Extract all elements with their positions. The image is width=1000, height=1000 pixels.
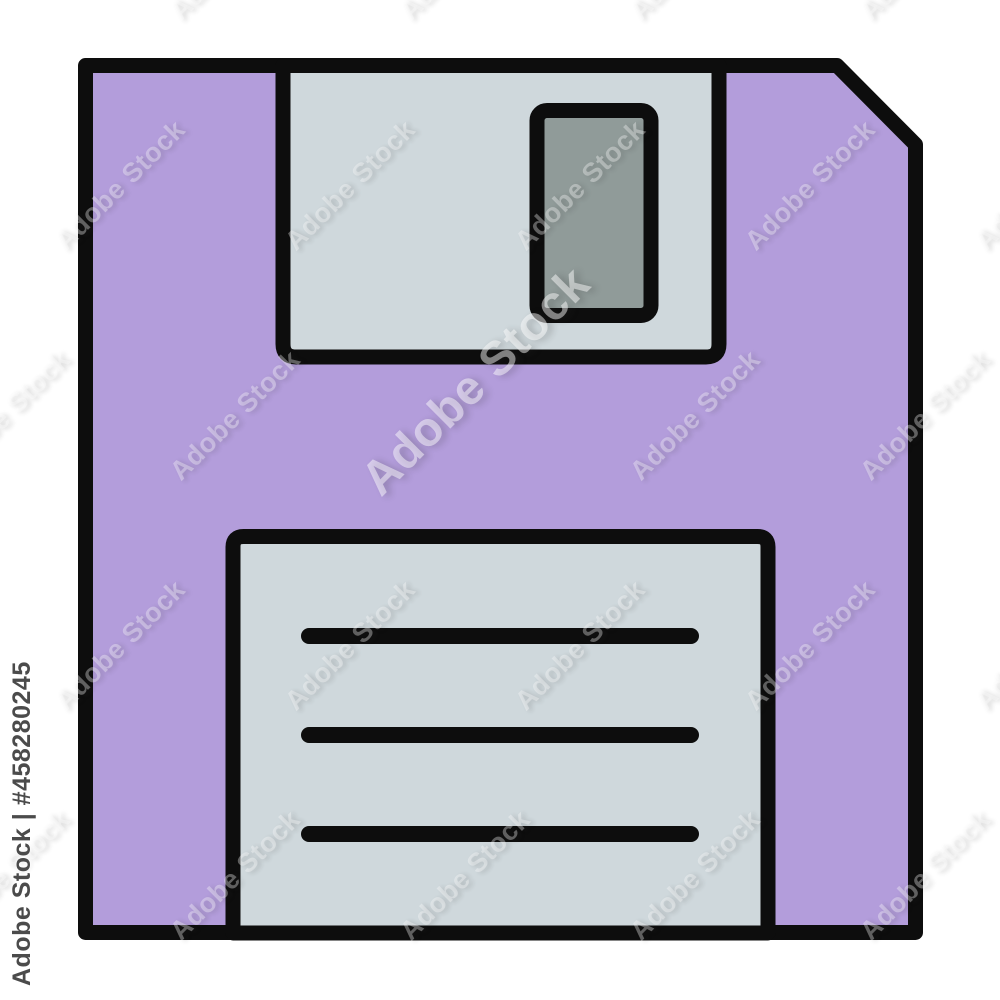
- icon-shapes: [86, 66, 916, 934]
- write-protect-window: [537, 111, 651, 316]
- stock-preview-canvas: Adobe Stock Adobe Stock Adobe Stock Adob…: [0, 0, 1000, 1000]
- watermark-id-text: Adobe Stock | #458280245: [8, 661, 37, 986]
- floppy-disk-icon: [0, 0, 1000, 1000]
